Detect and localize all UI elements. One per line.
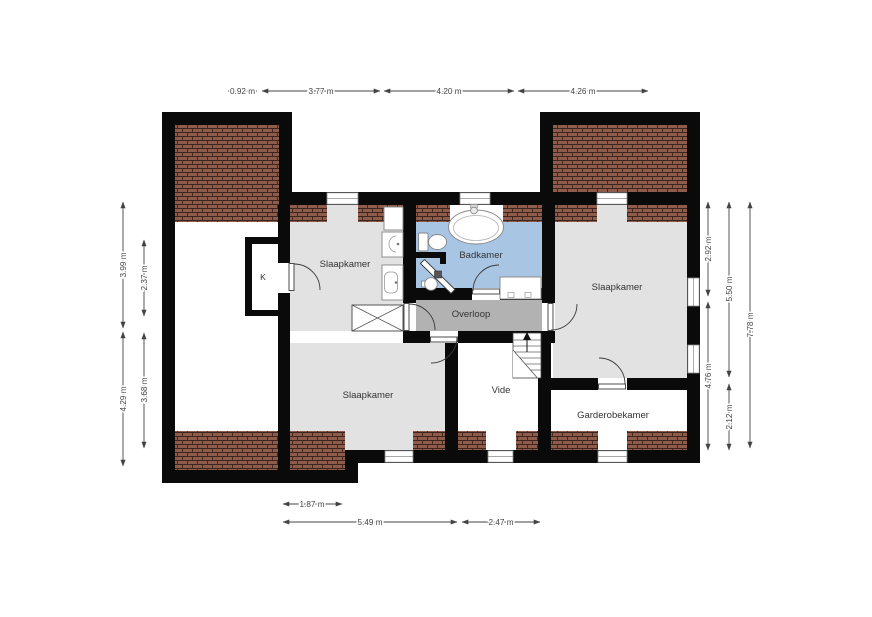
dimension-bottom-outer-2: 2.47 m bbox=[462, 518, 540, 527]
svg-text:3.99 m: 3.99 m bbox=[119, 252, 128, 277]
dimension-bottom-outer-1: 5.49 m bbox=[283, 518, 457, 527]
toilet-icon bbox=[419, 233, 447, 251]
washbasin-icon bbox=[382, 265, 403, 300]
shower-wall bbox=[440, 252, 446, 264]
window bbox=[688, 345, 699, 373]
dimension-left-inner-2: 3.68 m bbox=[140, 333, 149, 448]
svg-text:3.68 m: 3.68 m bbox=[140, 377, 149, 402]
window bbox=[327, 193, 358, 204]
dimension-right-outer: 7.78 m bbox=[746, 202, 755, 448]
roof-strip bbox=[413, 431, 445, 450]
roof-strip bbox=[503, 205, 542, 222]
roof-strip bbox=[458, 431, 486, 450]
dimension-right-inner-1: 2.92 m bbox=[704, 202, 713, 296]
svg-text:0.92 m: 0.92 m bbox=[230, 87, 255, 96]
window bbox=[460, 193, 490, 204]
window bbox=[597, 193, 627, 204]
washbasin-icon bbox=[382, 232, 403, 257]
label-kast: K bbox=[260, 272, 266, 282]
staircase bbox=[513, 332, 541, 378]
roof-area-ne bbox=[553, 125, 687, 192]
dimension-left-outer-2: 4.29 m bbox=[119, 332, 128, 466]
svg-text:5.50 m: 5.50 m bbox=[725, 276, 734, 301]
closet-wall bbox=[245, 237, 252, 316]
roof-strip bbox=[516, 431, 538, 450]
dimension-left-inner-1: 2.37 m bbox=[140, 240, 149, 316]
roof-area-nw bbox=[175, 125, 279, 222]
closet-wall bbox=[245, 237, 285, 244]
roof-strip bbox=[416, 205, 450, 222]
svg-text:4.20 m: 4.20 m bbox=[436, 87, 461, 96]
roof-strip bbox=[627, 205, 687, 222]
closet-wall bbox=[245, 310, 285, 316]
svg-text:5.49 m: 5.49 m bbox=[357, 518, 382, 527]
label-slaapkamer-e: Slaapkamer bbox=[592, 282, 643, 293]
label-slaapkamer-nw: Slaapkamer bbox=[320, 259, 371, 270]
dimension-right-inner-2: 4.76 m bbox=[704, 302, 713, 450]
floor-plan-page: Slaapkamer Badkamer Slaapkamer Overloop … bbox=[0, 0, 872, 617]
dimension-right-middle-1: 5.50 m bbox=[725, 202, 734, 377]
svg-text:7.78 m: 7.78 m bbox=[746, 312, 755, 337]
label-slaapkamer-sw: Slaapkamer bbox=[343, 390, 394, 401]
svg-text:2.12 m: 2.12 m bbox=[725, 404, 734, 429]
label-vide: Vide bbox=[492, 385, 511, 396]
roof-strip bbox=[551, 431, 598, 450]
window bbox=[598, 451, 627, 462]
window bbox=[488, 451, 513, 462]
roof-strip-sw-notch bbox=[290, 431, 345, 470]
svg-text:3.77 m: 3.77 m bbox=[308, 87, 333, 96]
roof-strip bbox=[553, 205, 597, 222]
bathtub-icon bbox=[449, 205, 504, 245]
label-garderobekamer: Garderobekamer bbox=[577, 410, 649, 421]
dimension-right-middle-2: 2.12 m bbox=[725, 384, 734, 450]
roof-strip bbox=[290, 205, 327, 222]
svg-text:2.47 m: 2.47 m bbox=[488, 518, 513, 527]
svg-text:4.29 m: 4.29 m bbox=[119, 386, 128, 411]
window bbox=[688, 278, 699, 306]
dimension-top-1: 0.92 m bbox=[228, 87, 257, 96]
double-washbasin-icon bbox=[500, 277, 541, 299]
cabinet-icon bbox=[384, 207, 403, 230]
svg-text:4.76 m: 4.76 m bbox=[704, 363, 713, 388]
dimension-top-2: 3.77 m bbox=[262, 87, 380, 96]
floor-plan-canvas: Slaapkamer Badkamer Slaapkamer Overloop … bbox=[0, 0, 872, 617]
svg-text:4.26 m: 4.26 m bbox=[570, 87, 595, 96]
dimension-top-3: 4.20 m bbox=[384, 87, 514, 96]
roof-area-sw bbox=[175, 431, 278, 470]
svg-text:1.87 m: 1.87 m bbox=[299, 500, 324, 509]
dimension-bottom-inner: 1.87 m bbox=[283, 500, 342, 509]
window bbox=[385, 451, 413, 462]
dimension-left-outer-1: 3.99 m bbox=[119, 202, 128, 328]
void-crossed-box-icon bbox=[352, 305, 403, 331]
svg-text:2.37 m: 2.37 m bbox=[140, 265, 149, 290]
roof-strip bbox=[627, 431, 687, 450]
label-overloop: Overloop bbox=[452, 309, 491, 320]
svg-text:2.92 m: 2.92 m bbox=[704, 236, 713, 261]
label-badkamer: Badkamer bbox=[459, 250, 502, 261]
dimension-top-4: 4.26 m bbox=[518, 87, 648, 96]
